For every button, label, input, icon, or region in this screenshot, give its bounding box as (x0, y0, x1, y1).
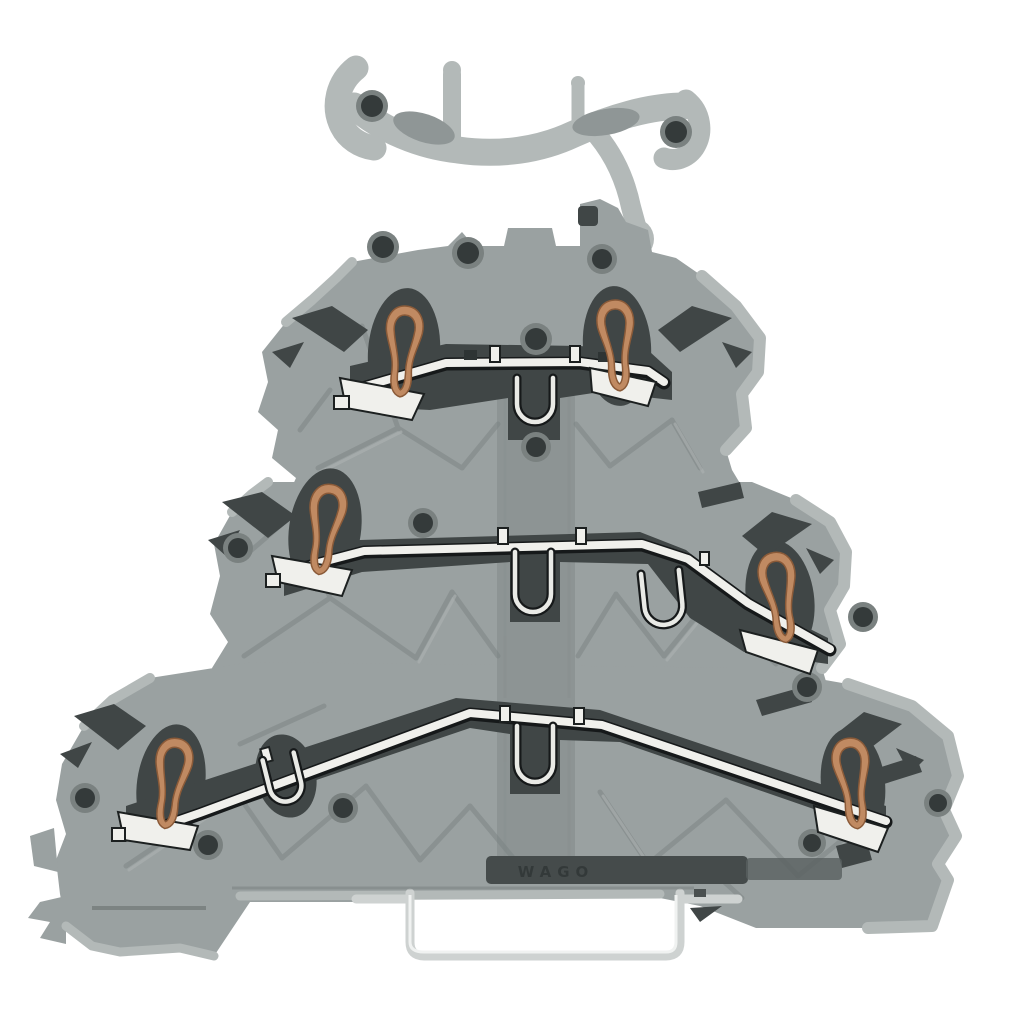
rail-clip-notch (694, 889, 706, 897)
clamp-foot (266, 574, 280, 587)
contact-tab (490, 346, 500, 362)
contact-tab (574, 708, 584, 724)
clamp-foot (112, 828, 125, 841)
carrier-hole (361, 95, 383, 117)
contact-tab (700, 552, 709, 565)
contact-tab (570, 346, 580, 362)
contact-slot (464, 350, 477, 360)
terminal-block-render: WAGO (0, 0, 1024, 1024)
prong-knob (443, 61, 461, 79)
contact-tab (576, 528, 586, 544)
product-image: WAGO (0, 0, 1024, 1024)
contact-tab (498, 528, 508, 544)
embossed-brand-label: WAGO (518, 863, 595, 881)
carrier-hole (665, 121, 687, 143)
label-slot-shadow (746, 858, 842, 880)
prong-knob (571, 76, 585, 90)
clamp-foot (334, 396, 349, 409)
contact-tab (500, 706, 510, 722)
vent-slot (578, 206, 598, 226)
